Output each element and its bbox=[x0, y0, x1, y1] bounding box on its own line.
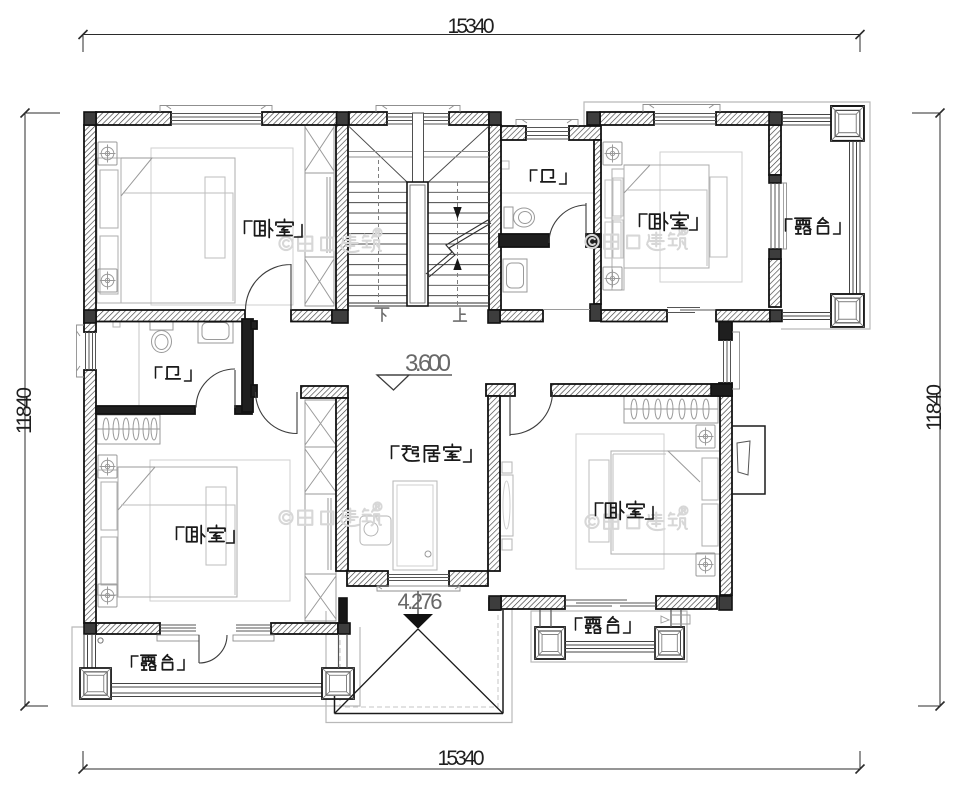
svg-text:15340: 15340 bbox=[438, 747, 485, 770]
svg-text:11840: 11840 bbox=[13, 387, 36, 434]
svg-text:3.600: 3.600 bbox=[405, 350, 451, 377]
svg-text:15340: 15340 bbox=[448, 15, 495, 38]
svg-text:4.276: 4.276 bbox=[398, 589, 443, 614]
svg-text:11840: 11840 bbox=[923, 384, 946, 431]
